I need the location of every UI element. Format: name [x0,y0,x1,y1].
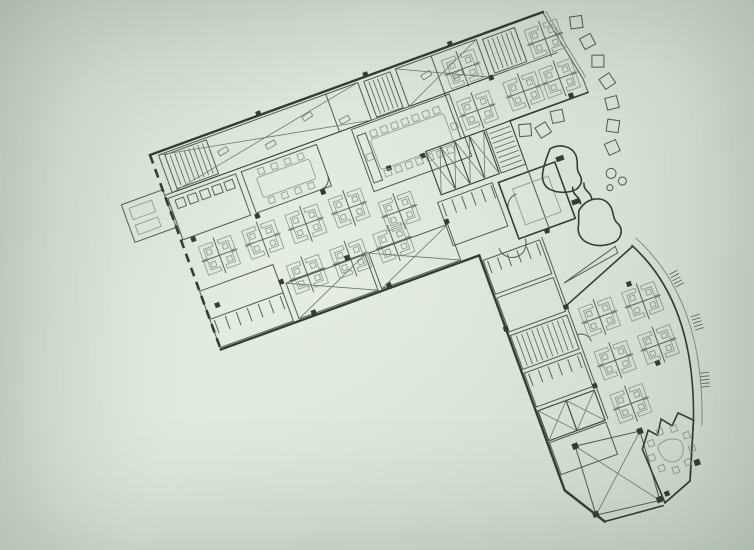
screenshot [0,0,754,550]
floor-plan-drawing [0,0,754,550]
floor-plan-photo [0,0,754,550]
